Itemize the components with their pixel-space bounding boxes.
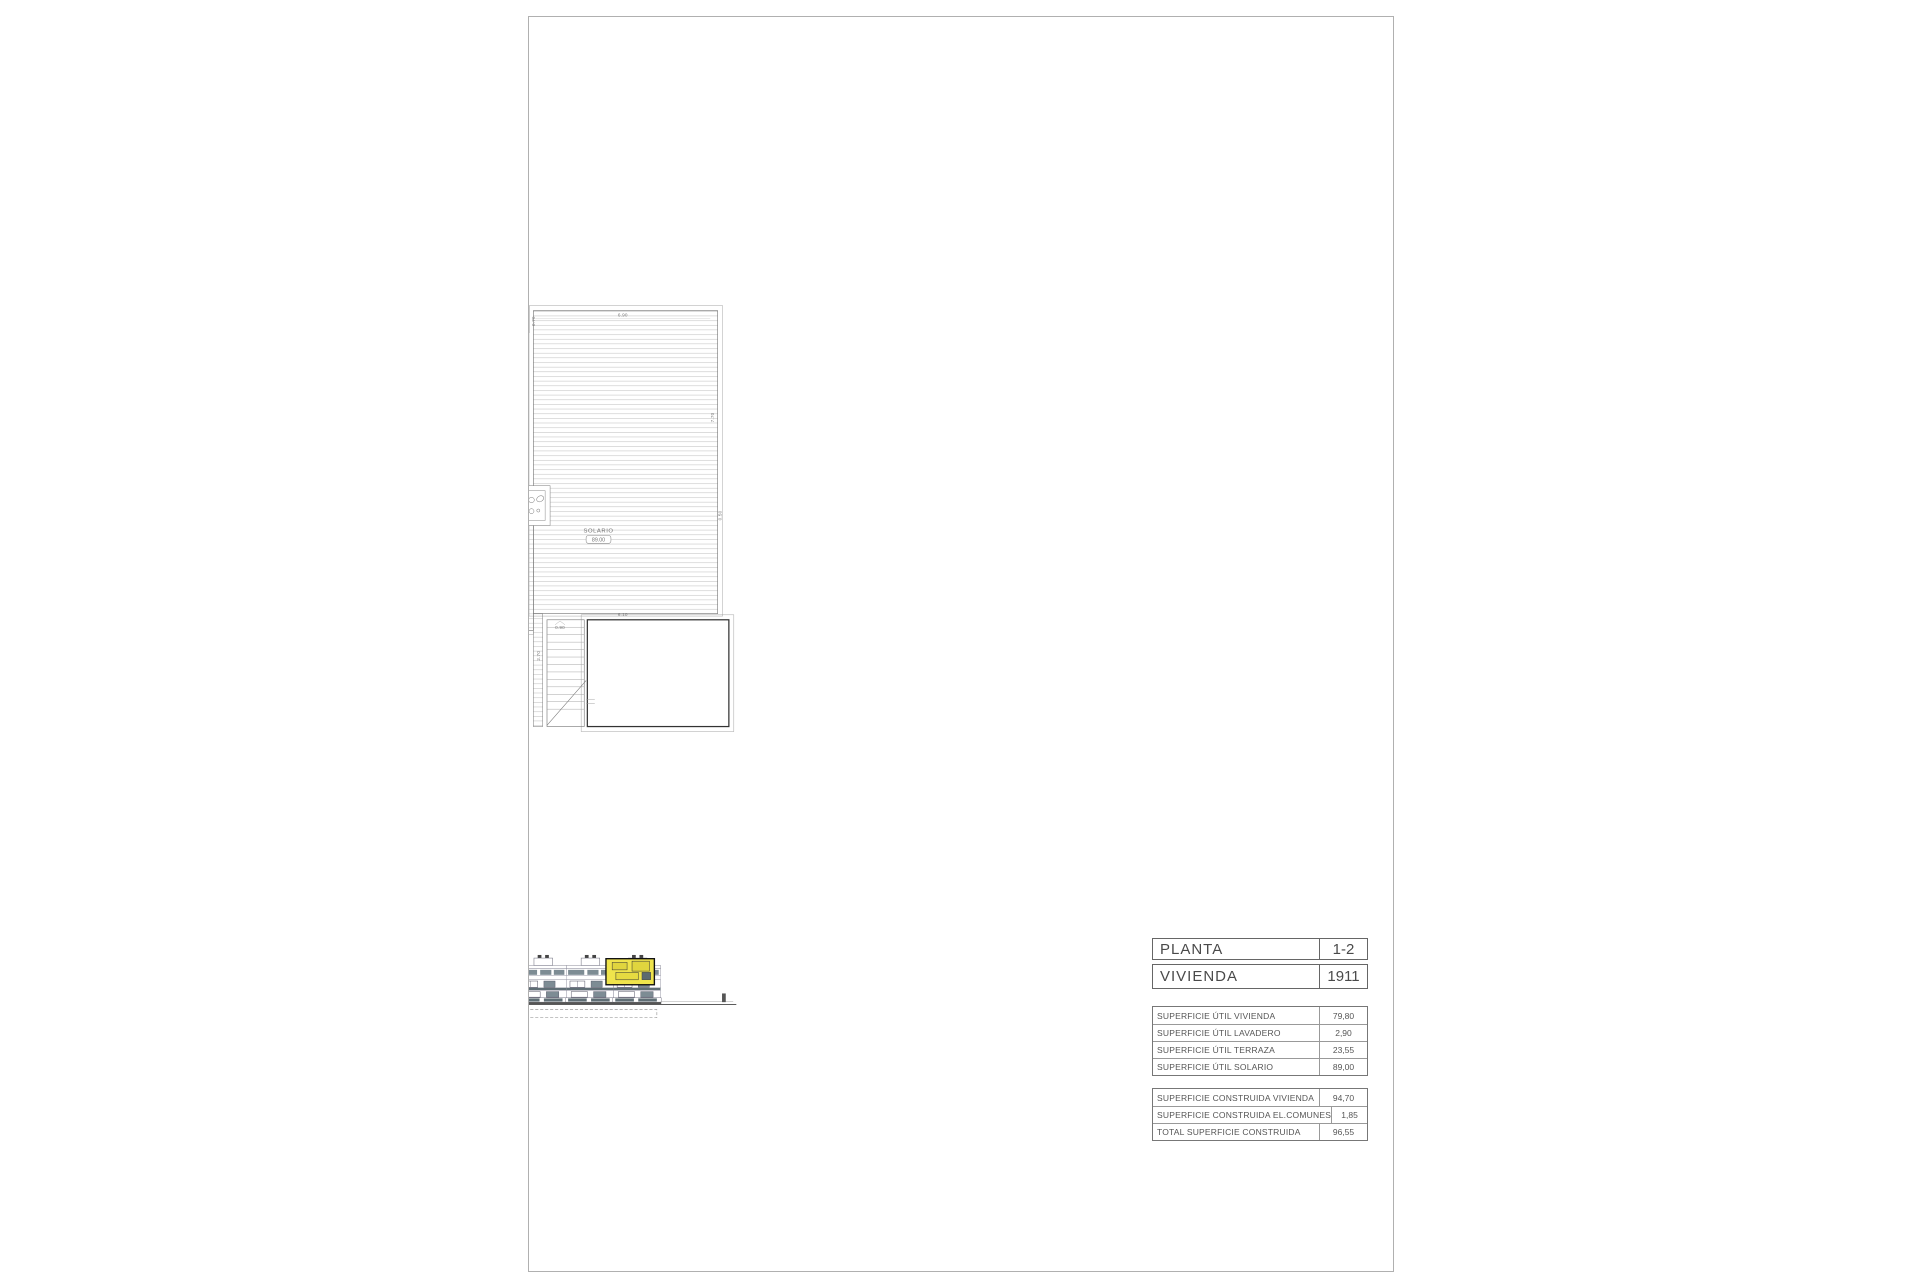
vivienda-label: VIVIENDA xyxy=(1153,968,1319,985)
floor-plan-svg: 1911 DORM.2 10.60 DORM.1 13.65 ASEO 3.90… xyxy=(529,17,1393,1271)
svg-text:6.90: 6.90 xyxy=(618,312,628,317)
drawing-sheet: 1911 DORM.2 10.60 DORM.1 13.65 ASEO 3.90… xyxy=(528,16,1394,1272)
svg-text:7.70: 7.70 xyxy=(710,412,715,422)
building-elevation xyxy=(529,955,736,1018)
table-row: SUPERFICIE CONSTRUIDA VIVIENDA 94,70 xyxy=(1153,1089,1367,1106)
planta-label: PLANTA xyxy=(1153,941,1319,958)
table-superficie-construida: SUPERFICIE CONSTRUIDA VIVIENDA 94,70 SUP… xyxy=(1152,1088,1368,1141)
svg-text:0.50: 0.50 xyxy=(717,510,722,520)
table-superficie-util: SUPERFICIE ÚTIL VIVIENDA 79,80 SUPERFICI… xyxy=(1152,1006,1368,1076)
vivienda-value: 1911 xyxy=(1319,965,1367,988)
table-row: SUPERFICIE ÚTIL TERRAZA 23,55 xyxy=(1153,1041,1367,1058)
solario-plan: SOLARIO 89.00 0.70 6.90 7.70 0.50 1.40 7… xyxy=(529,306,734,732)
svg-text:6.10: 6.10 xyxy=(618,612,628,617)
solario-kitchen-fixture xyxy=(529,486,550,526)
highlighted-unit xyxy=(606,959,654,985)
svg-text:89.00: 89.00 xyxy=(592,538,605,544)
table-row: SUPERFICIE ÚTIL SOLARIO 89,00 xyxy=(1153,1058,1367,1075)
solario-lower-room xyxy=(581,615,734,732)
room-label-solario: SOLARIO 89.00 xyxy=(584,528,614,543)
table-row: TOTAL SUPERFICIE CONSTRUIDA 96,55 xyxy=(1153,1123,1367,1140)
table-row: SUPERFICIE ÚTIL VIVIENDA 79,80 xyxy=(1153,1007,1367,1024)
title-row-planta: PLANTA 1-2 xyxy=(1152,938,1368,960)
table-row: SUPERFICIE ÚTIL LAVADERO 2,90 xyxy=(1153,1024,1367,1041)
svg-text:2.70: 2.70 xyxy=(536,651,541,661)
elevation-extent-box xyxy=(529,1010,657,1018)
table-row: SUPERFICIE CONSTRUIDA EL.COMUNES 1,85 xyxy=(1153,1106,1367,1123)
svg-text:0.70: 0.70 xyxy=(531,316,536,326)
svg-text:0.90: 0.90 xyxy=(555,625,565,630)
title-row-vivienda: VIVIENDA 1911 xyxy=(1152,964,1368,989)
svg-text:SOLARIO: SOLARIO xyxy=(584,528,614,534)
planta-value: 1-2 xyxy=(1319,939,1367,959)
